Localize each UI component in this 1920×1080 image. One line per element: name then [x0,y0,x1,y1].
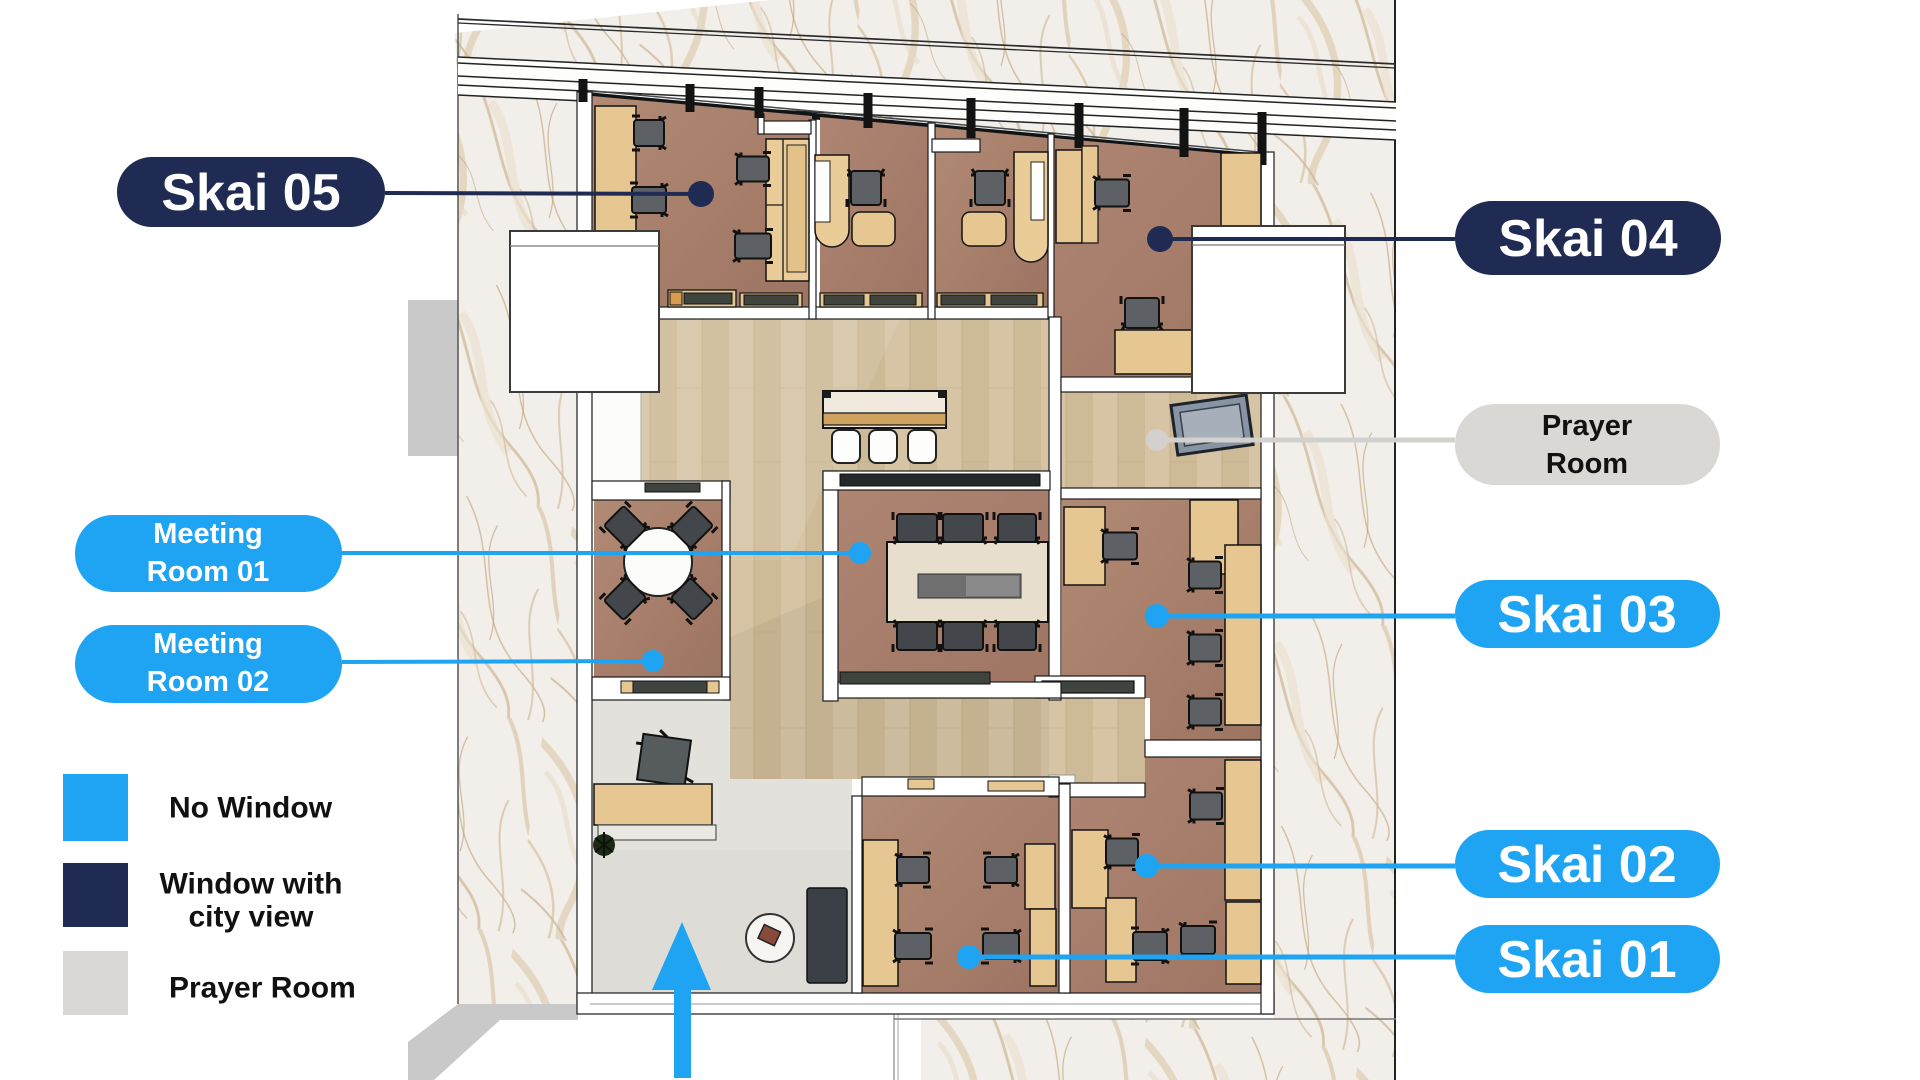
svg-text:Window with: Window with [159,868,342,901]
svg-text:Prayer: Prayer [1542,410,1632,442]
svg-text:Room: Room [1546,448,1628,480]
svg-text:city view: city view [188,901,314,934]
svg-text:No Window: No Window [169,792,333,825]
svg-text:Meeting: Meeting [153,518,263,550]
svg-text:Room 01: Room 01 [147,556,269,588]
svg-text:Skai 03: Skai 03 [1497,586,1676,644]
svg-text:Prayer Room: Prayer Room [169,972,356,1005]
svg-text:Skai 02: Skai 02 [1497,836,1676,894]
svg-text:Skai 05: Skai 05 [161,164,340,222]
svg-text:Room 02: Room 02 [147,666,269,698]
svg-text:Meeting: Meeting [153,628,263,660]
svg-text:Skai 04: Skai 04 [1498,210,1677,268]
svg-text:Skai 01: Skai 01 [1497,931,1676,989]
